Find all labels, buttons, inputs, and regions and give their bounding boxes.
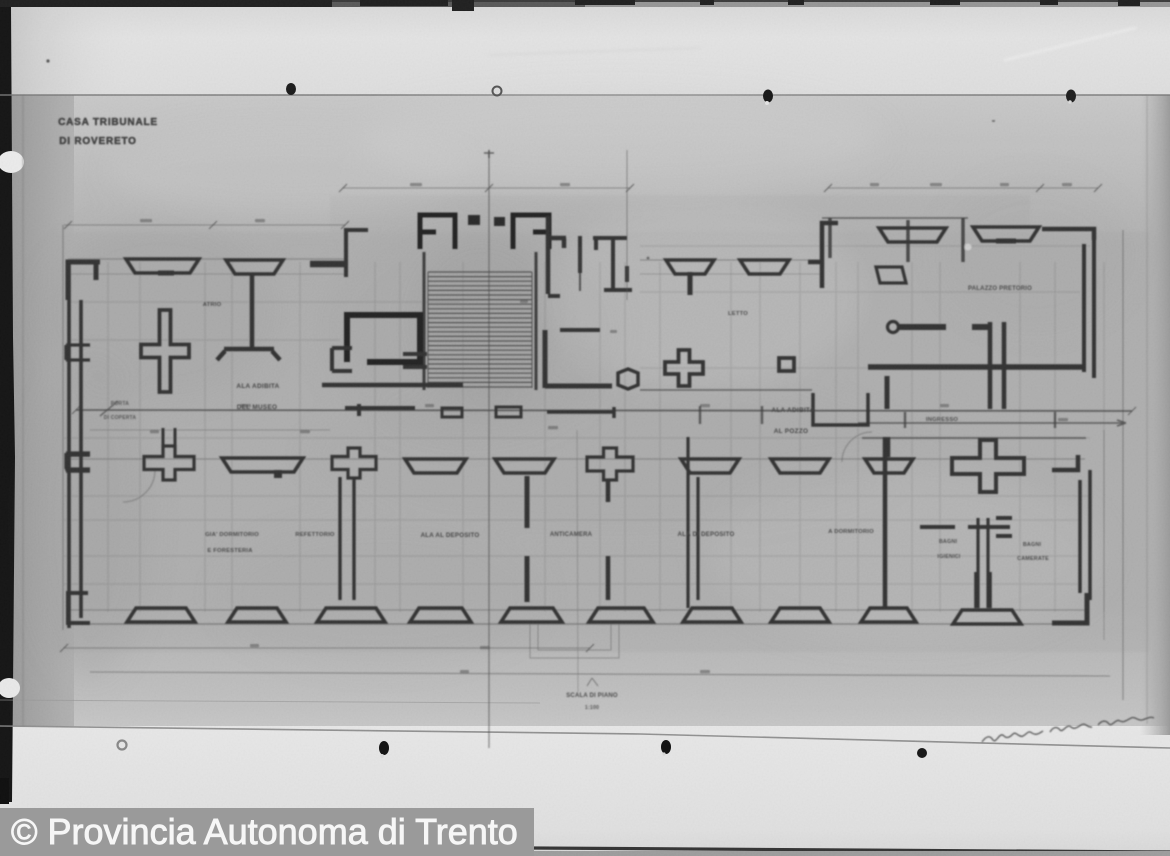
svg-text:© Provincia Autonoma di Trento: © Provincia Autonoma di Trento — [11, 811, 518, 852]
